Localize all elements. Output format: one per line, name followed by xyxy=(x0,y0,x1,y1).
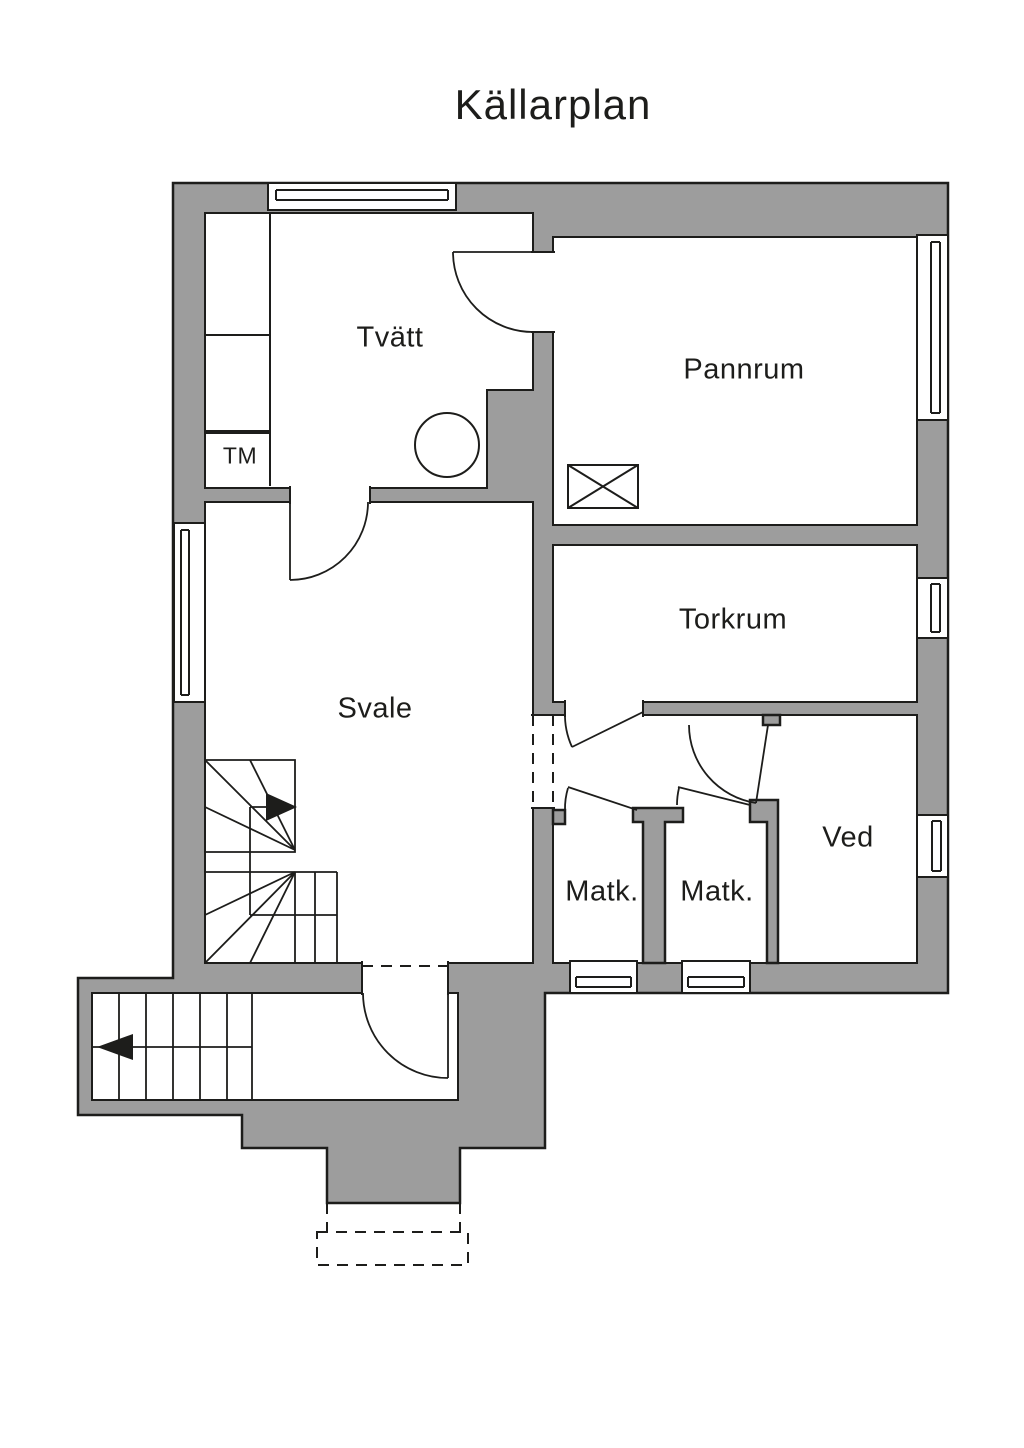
tvatt-window xyxy=(268,183,456,210)
appliance-label-tm: TM xyxy=(223,443,257,470)
floor-plan-drawing xyxy=(0,0,1024,1448)
outside-steps xyxy=(317,1203,468,1265)
ved-door-jamb xyxy=(763,715,780,725)
room-label-tvatt: Tvätt xyxy=(357,322,424,355)
matk-left-window xyxy=(570,961,637,993)
matk-right-window xyxy=(682,961,750,993)
room-label-matk-left: Matk. xyxy=(565,876,638,909)
room-label-ved: Ved xyxy=(822,822,874,855)
pannrum-window xyxy=(917,235,948,420)
torkrum-window xyxy=(917,578,948,638)
floor-plan-page: Källarplan Tvätt Pannrum Torkrum Svale M… xyxy=(0,0,1024,1448)
room-label-pannrum: Pannrum xyxy=(683,354,804,387)
room-label-torkrum: Torkrum xyxy=(679,604,787,637)
room-label-matk-right: Matk. xyxy=(680,876,753,909)
room-svale-floor xyxy=(205,502,533,963)
page-title: Källarplan xyxy=(455,81,652,129)
svale-window xyxy=(174,523,205,702)
room-label-svale: Svale xyxy=(337,693,412,726)
ved-window xyxy=(917,815,948,877)
corridor-jamb xyxy=(553,810,565,824)
